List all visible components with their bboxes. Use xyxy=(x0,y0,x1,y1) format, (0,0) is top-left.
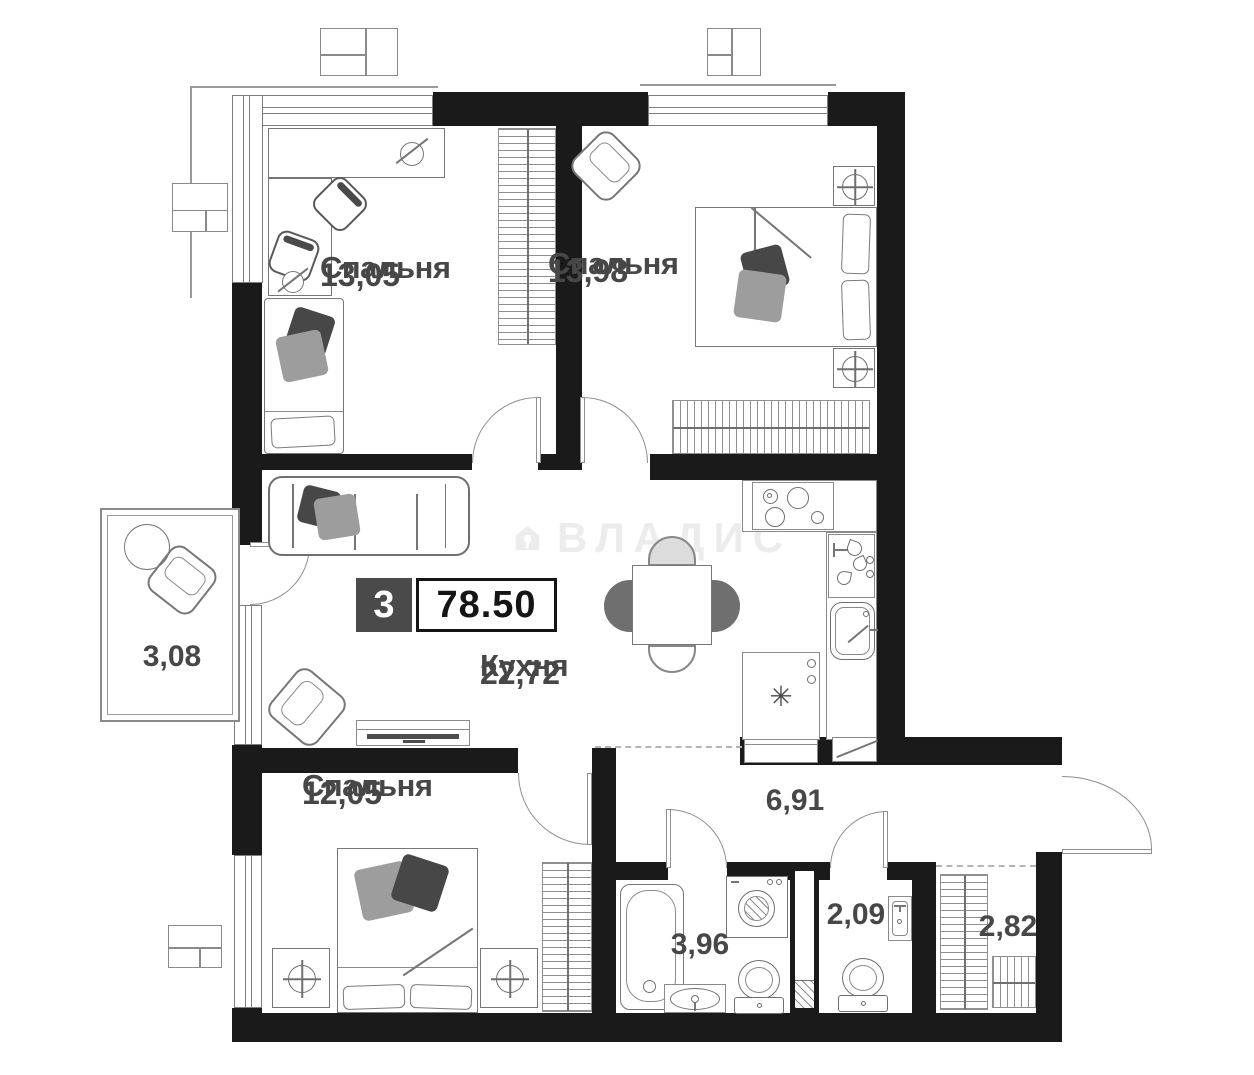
wall-left-corner xyxy=(232,1008,262,1042)
dining-chair xyxy=(648,645,696,673)
kitchen-sink xyxy=(830,602,875,660)
cabinet-knob xyxy=(866,556,874,564)
bedroom1-door-arc xyxy=(472,397,538,463)
single-bed xyxy=(264,298,344,454)
wardrobe xyxy=(992,956,1036,1008)
wall-hall-top xyxy=(877,737,1062,765)
room-area: 12,05 xyxy=(302,775,382,812)
wc-door-leaf xyxy=(883,811,888,868)
wall-bath-top-left xyxy=(616,862,668,880)
cabinet-knob xyxy=(866,570,874,578)
table-lamp-icon xyxy=(288,965,316,993)
bedroom2-door-leaf xyxy=(580,397,585,463)
corner-cabinet xyxy=(832,737,877,762)
bed-pillow xyxy=(343,984,406,1010)
tv-stand xyxy=(356,720,470,746)
house-key-icon xyxy=(512,513,543,563)
double-bed xyxy=(337,848,478,1013)
room-area-hallway: 6,91 xyxy=(755,784,835,818)
bed-pillow xyxy=(410,984,473,1010)
double-bed xyxy=(695,207,877,347)
dining-chair xyxy=(712,580,740,632)
utility-shaft xyxy=(790,866,819,1013)
room-area: 13,98 xyxy=(548,253,628,290)
stove xyxy=(752,482,834,530)
wall-left-upper xyxy=(232,283,262,545)
bedroom2-window xyxy=(648,95,828,126)
bed-pillow xyxy=(841,214,871,275)
vent-shaft-block xyxy=(707,28,761,76)
wc-door-arc xyxy=(830,811,887,868)
room-area-storage: 2,82 xyxy=(968,910,1048,944)
room-area-balcony: 3,08 xyxy=(130,640,214,674)
wall-bedroom3-bath xyxy=(592,748,616,1013)
bathroom-door-leaf xyxy=(666,809,671,868)
wall-right xyxy=(877,92,905,765)
room-area-wc: 2,09 xyxy=(818,898,894,932)
kitchen-hall-boundary xyxy=(595,746,742,748)
window-sill-line xyxy=(640,84,836,86)
bathroom-sink xyxy=(664,984,726,1013)
dining-chair xyxy=(604,580,632,632)
wall-under-bedroom1 xyxy=(262,454,472,470)
total-area: 78.50 xyxy=(436,584,536,627)
nightstand xyxy=(833,348,875,388)
wall-wc-top xyxy=(887,862,912,880)
bed-pillow-gray xyxy=(275,329,330,384)
vent-shaft-block xyxy=(320,28,398,76)
entrance-door-leaf xyxy=(1062,849,1152,854)
nightstand xyxy=(272,948,330,1008)
room-area-bathroom: 3,96 xyxy=(660,928,740,962)
window-sill-line xyxy=(190,86,438,88)
rooms-count-badge: 3 xyxy=(356,578,412,632)
entrance-door-arc xyxy=(1062,776,1152,849)
sofa xyxy=(268,476,470,556)
wardrobe xyxy=(498,128,556,345)
desk-lamp-icon xyxy=(274,262,312,300)
armchair xyxy=(263,663,350,750)
bathroom-door-arc xyxy=(668,809,727,868)
vent-shaft-block xyxy=(172,183,228,232)
corner-window-top xyxy=(240,95,433,126)
fridge: ✳ xyxy=(742,652,820,740)
nightstand xyxy=(480,948,538,1008)
wall-under-bedroom2 xyxy=(650,454,877,480)
bedroom3-door-leaf xyxy=(587,773,592,845)
nightstand xyxy=(833,166,875,206)
fridge-snowflake-icon: ✳ xyxy=(769,680,792,713)
bedroom1-door-leaf xyxy=(536,397,541,463)
bedroom3-window xyxy=(234,855,262,1008)
dining-table xyxy=(632,565,712,645)
total-area-badge: 78.50 xyxy=(416,578,557,632)
toilet xyxy=(838,958,888,1014)
kitchen-counter xyxy=(744,739,818,763)
bed-pillow xyxy=(270,415,335,448)
wardrobe xyxy=(672,400,870,454)
bed-pillow-gray xyxy=(733,269,787,323)
table-lamp-icon xyxy=(496,965,524,993)
rooms-count: 3 xyxy=(373,584,394,627)
bedroom3-door-arc xyxy=(518,773,590,845)
bed-pillow xyxy=(841,280,871,341)
toilet xyxy=(734,960,784,1014)
wall-bottom xyxy=(232,1013,1062,1042)
wall-top-center xyxy=(433,92,648,126)
glass-rack xyxy=(828,534,875,598)
bedroom2-door-arc xyxy=(582,397,648,463)
vent-shaft-block xyxy=(168,925,222,968)
wall-wc-right xyxy=(912,862,936,1013)
storage-boundary xyxy=(936,865,1036,867)
floor-plan: ВЛАДИС xyxy=(0,0,1254,1075)
wardrobe xyxy=(542,862,592,1012)
sofa-pillow-gray xyxy=(313,493,361,541)
table-lamp-icon xyxy=(842,174,868,200)
room-area: 13,05 xyxy=(320,257,400,294)
corner-window-left xyxy=(232,95,263,283)
room-area: 22,72 xyxy=(480,655,560,692)
table-lamp-icon xyxy=(842,356,868,382)
desk-lamp-icon xyxy=(392,132,432,172)
